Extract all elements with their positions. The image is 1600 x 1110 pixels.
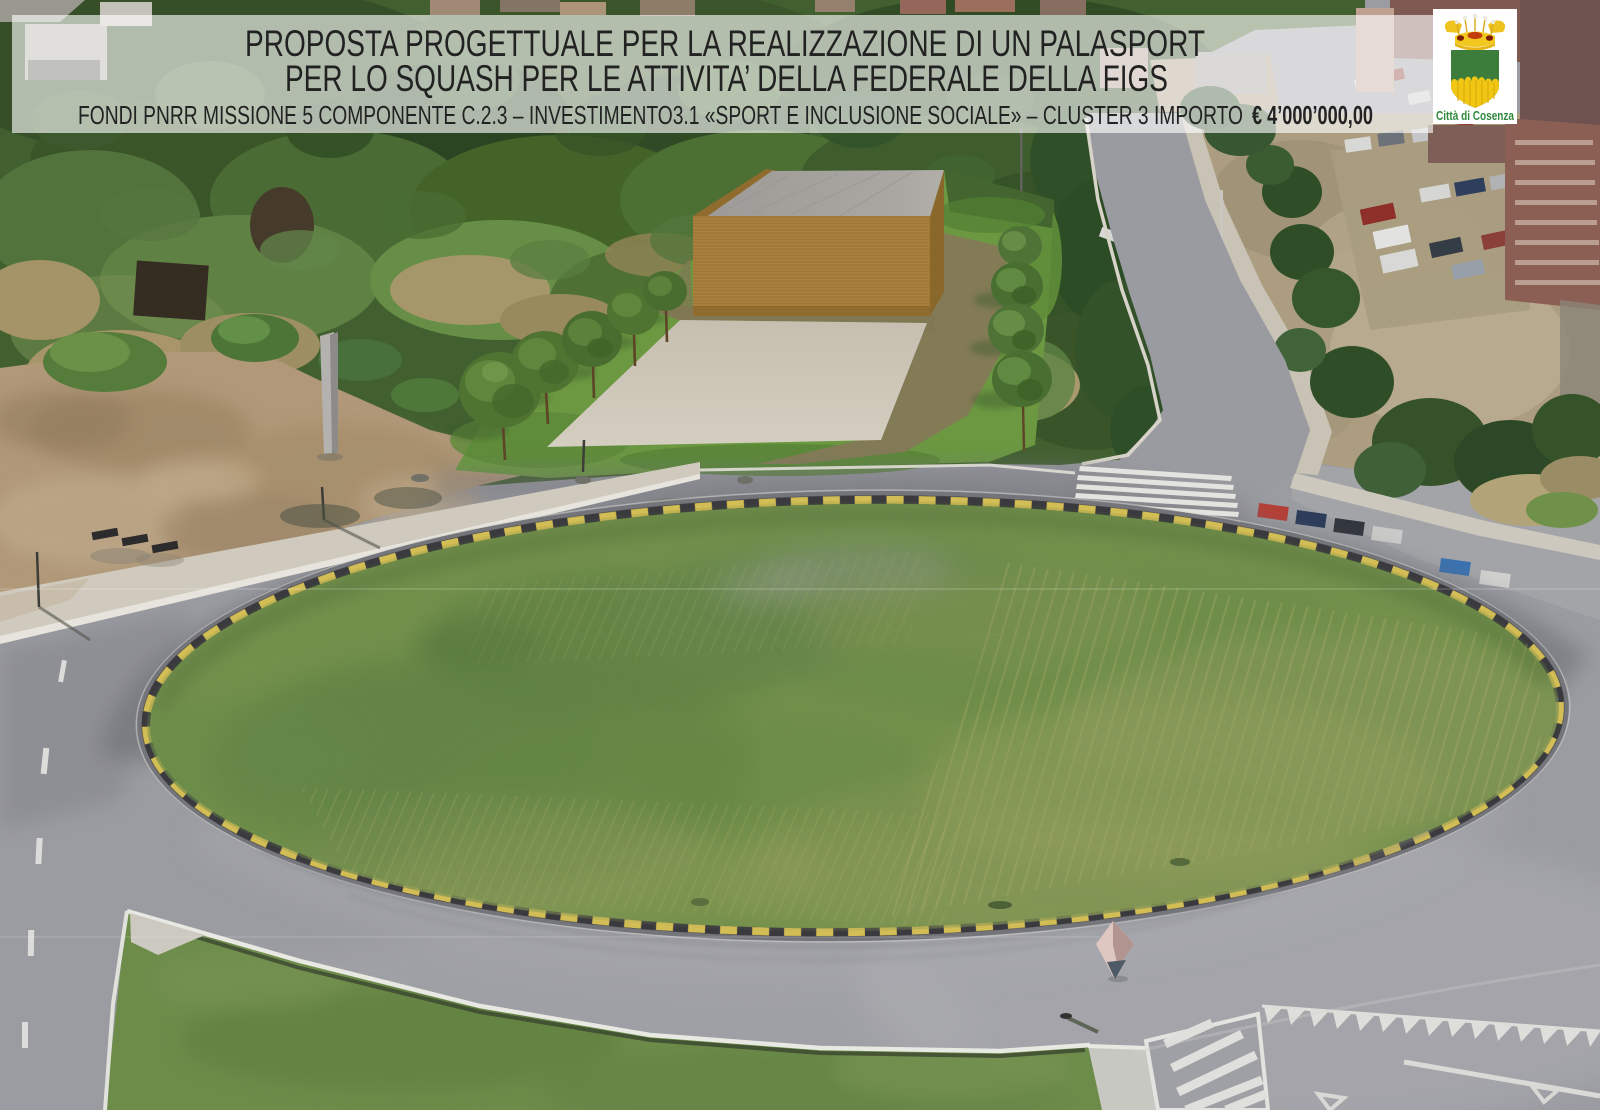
svg-text:Città di Cosenza: Città di Cosenza — [1436, 109, 1515, 123]
svg-text:FONDI PNRR MISSIONE 5 COMPONEN: FONDI PNRR MISSIONE 5 COMPONENTE C.2.3 –… — [78, 100, 1243, 130]
svg-text:€ 4’000’000,00: € 4’000’000,00 — [1252, 100, 1373, 130]
svg-text:PER LO SQUASH PER LE ATTIVITA’: PER LO SQUASH PER LE ATTIVITA’ DELLA FED… — [285, 58, 1168, 99]
